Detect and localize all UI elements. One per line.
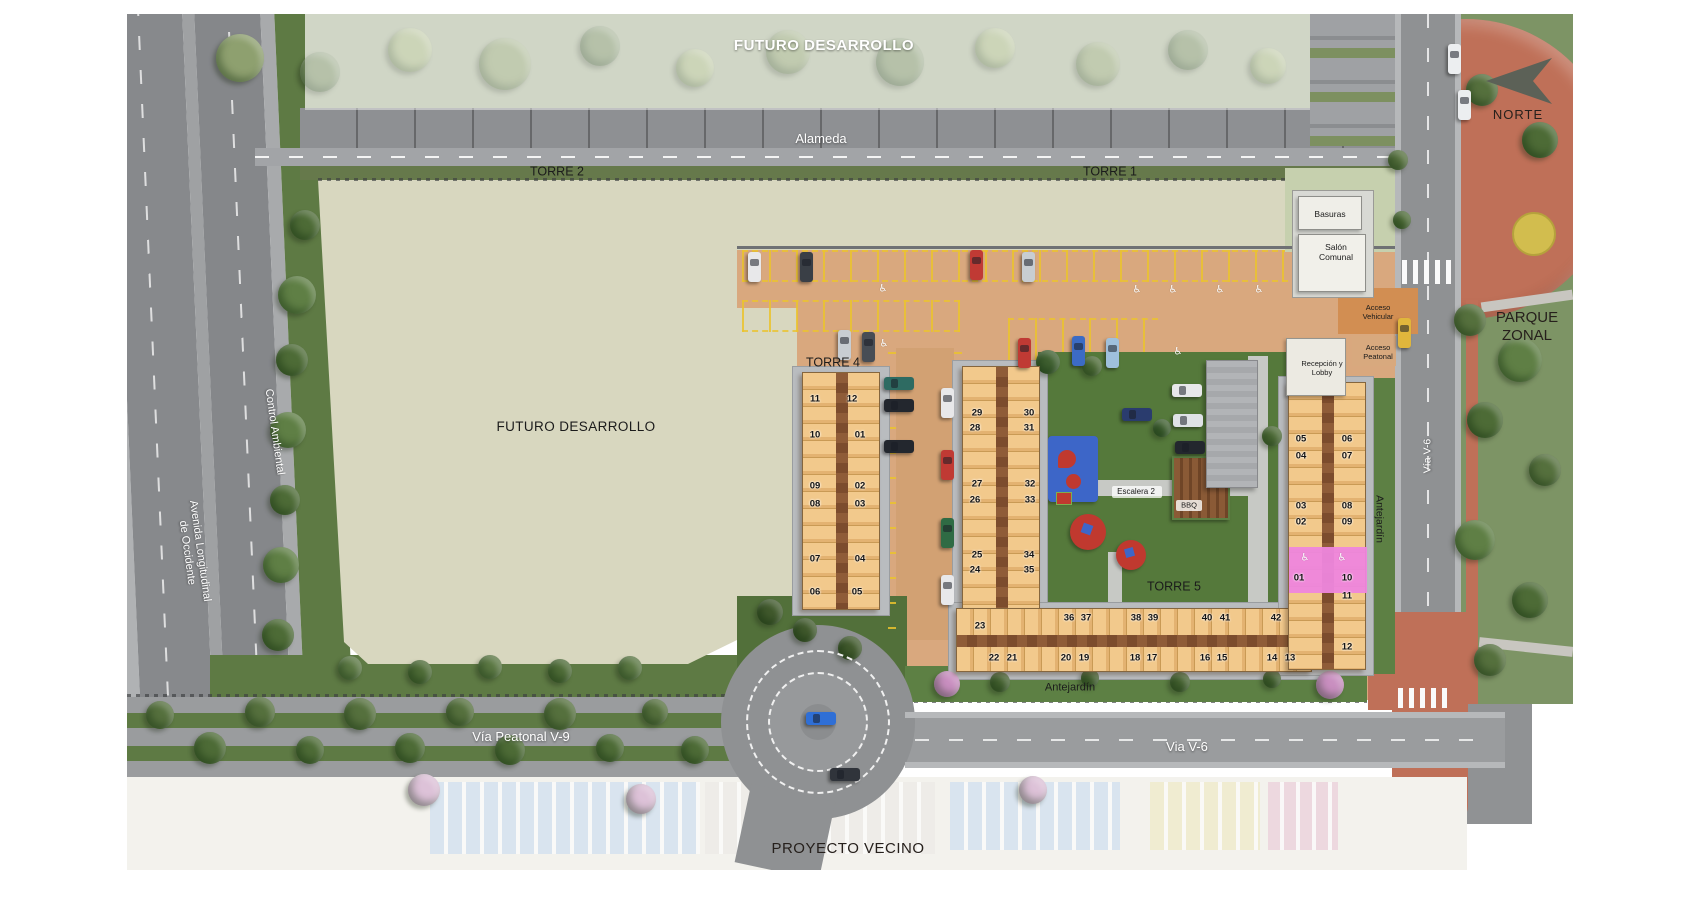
tree [146,701,174,729]
unit-number: 22 [989,653,1000,664]
unit-number: 11 [810,394,820,405]
tree [681,736,709,764]
tree [1316,671,1344,699]
car-windshield [943,525,952,532]
car-windshield [1024,259,1033,266]
unit-number: 39 [1148,613,1159,624]
unit-number: 10 [1342,573,1353,584]
tree [1393,211,1411,229]
unit-number: 37 [1081,613,1092,624]
label-torre-4: TORRE 4 [806,356,860,371]
car-windshield [1460,97,1469,104]
unit-number: 17 [1147,653,1158,664]
tree [1262,426,1282,446]
tree [1474,644,1506,676]
tree [1153,419,1171,437]
label-antejardin-east: Antejardín [1373,495,1386,543]
car-windshield [864,339,873,346]
unit-number: 03 [1296,501,1307,512]
tree [408,774,440,806]
unit-number: 06 [1342,434,1353,445]
unit-number: 30 [1024,408,1035,419]
car [884,377,914,390]
handicap-stall-icon: ♿ [880,339,889,350]
unit-number: 18 [1130,653,1141,664]
unit-number: 15 [1217,653,1228,664]
alameda-walkway [300,108,1397,148]
car-windshield [1182,443,1189,452]
car [941,450,954,480]
unit-number: 05 [1296,434,1307,445]
tree [548,659,572,683]
car [806,712,836,725]
label-antejardin-south: Antejardín [1045,681,1095,694]
car-windshield [802,259,811,266]
tree [934,671,960,697]
torre1-corridor [1322,383,1334,669]
car-windshield [943,582,952,589]
car-windshield [1074,343,1083,350]
tree [194,732,226,764]
car-windshield [891,401,898,410]
handicap-stall-icon: ♿ [879,284,888,295]
unit-number: 07 [810,554,821,565]
play-structure-red-2 [1066,474,1081,489]
car-windshield [1179,386,1186,395]
handicap-stall-icon: ♿ [1255,285,1264,296]
car-windshield [813,714,820,723]
car [970,250,983,280]
car-windshield [750,259,759,266]
unit-number: 14 [1267,653,1278,664]
tree [1082,356,1102,376]
unit-number: 02 [855,481,866,492]
tree [596,734,624,762]
unit-number: 20 [1061,653,1072,664]
car [830,768,860,781]
v9-boundary-hatch [127,694,739,697]
unit-number: 13 [1285,653,1296,664]
unit-number: 01 [1294,573,1305,584]
tree [478,655,502,679]
car-windshield [891,442,898,451]
tree [276,344,308,376]
car [748,252,761,282]
unit-number: 29 [972,408,983,419]
car-windshield [943,395,952,402]
tree [263,547,299,583]
label-torre-2: TORRE 2 [530,165,584,180]
tree [296,736,324,764]
tree [446,698,474,726]
unit-number: 32 [1025,479,1036,490]
car-windshield [840,337,849,344]
unit-number: 04 [1296,451,1307,462]
car [1022,252,1035,282]
via-v6-bottom-sidewalk-s [905,762,1505,768]
car [1448,44,1461,74]
unit-number: 06 [810,587,821,598]
unit-number: 25 [972,550,983,561]
gray-roof-building [1206,360,1258,488]
unit-number: 42 [1271,613,1282,624]
label-norte: NORTE [1493,107,1543,123]
car-windshield [1400,325,1409,332]
future-area-notch [737,308,797,640]
car [862,332,875,362]
unit-number: 41 [1220,613,1231,624]
northeast-parking-strips [1310,14,1395,146]
handicap-stall-icon: ♿ [1216,285,1225,296]
label-recepcion-lobby: Recepción y Lobby [1298,359,1346,377]
tree [338,656,362,680]
label-via-v6-south: Via V-6 [1166,739,1208,755]
car [1072,336,1085,366]
car-windshield [1450,51,1459,58]
label-parque-zonal: PARQUE ZONAL [1480,309,1573,345]
car-windshield [972,257,981,264]
unit-number: 35 [1024,565,1035,576]
unit-number: 02 [1296,517,1307,528]
unit-number: 05 [852,587,863,598]
car-windshield [1129,410,1136,419]
handicap-stall-icon: ♿ [1338,553,1347,564]
tree [216,34,264,82]
tree [344,698,376,730]
label-acceso-vehicular: Acceso Vehicular [1357,303,1399,321]
map-clip: FUTURO DESARROLLO Alameda TORRE 2 TORRE … [127,14,1573,870]
car-windshield [1020,345,1029,352]
label-torre-5: TORRE 5 [1147,580,1201,595]
unit-number: 04 [855,554,866,565]
unit-number: 08 [1342,501,1353,512]
unit-number: 01 [855,430,866,441]
tree [618,656,642,680]
unit-number: 16 [1200,653,1211,664]
label-via-peatonal-v9: Vía Peatonal V-9 [472,729,570,745]
play-structure-red-3 [1056,492,1072,505]
car-windshield [943,457,952,464]
car [941,575,954,605]
car [1172,384,1202,397]
parking-row-2 [742,300,960,332]
label-futuro-desarrollo-top: FUTURO DESARROLLO [734,37,914,55]
tree [1455,520,1495,560]
unit-number: 38 [1131,613,1142,624]
unit-number: 11 [1342,591,1352,602]
map-world: FUTURO DESARROLLO Alameda TORRE 2 TORRE … [127,14,1573,870]
site-boundary-hatch-top [318,178,1290,181]
label-proyecto-vecino: PROYECTO VECINO [771,840,924,858]
tree [262,619,294,651]
tree [1019,776,1047,804]
car [1122,408,1152,421]
unit-number: 19 [1079,653,1090,664]
park-playground-circle [1512,212,1556,256]
car [941,518,954,548]
tree [408,660,432,684]
unit-number: 33 [1025,495,1036,506]
via-v6-bottom-sidewalk-n [905,712,1505,718]
handicap-stall-icon: ♿ [1169,285,1178,296]
unit-number: 24 [970,565,981,576]
unit-number: 09 [810,481,821,492]
unit-number: 10 [810,430,821,441]
unit-number: 28 [970,423,981,434]
unit-number: 23 [975,621,986,632]
crosswalk-brick [1398,688,1450,708]
tree [1512,582,1548,618]
car [1458,90,1471,120]
torre4-corridor [836,373,848,609]
unit-number: 09 [1342,517,1353,528]
car-windshield [1180,416,1187,425]
car [884,440,914,453]
tree [290,210,320,240]
unit-number: 27 [972,479,983,490]
label-via-v6-east: Vía V-6 [1422,439,1435,473]
handicap-stall-icon: ♿ [1301,553,1310,564]
play-structure-red-1 [1058,450,1076,468]
label-bbq: BBQ [1181,501,1197,510]
unit-number: 21 [1007,653,1018,664]
tree [395,733,425,763]
tree [1467,402,1503,438]
unit-number: 08 [810,499,821,510]
tree [270,485,300,515]
label-futuro-desarrollo-main: FUTURO DESARROLLO [496,419,655,435]
unit-number: 12 [1342,642,1353,653]
alameda-street-centerline [255,156,1395,158]
car [1175,441,1205,454]
tree [1263,670,1281,688]
tree [990,672,1010,692]
handicap-stall-icon: ♿ [1174,347,1183,358]
label-acceso-peatonal: Acceso Peatonal [1358,343,1398,361]
unit-number: 26 [970,495,981,506]
tree [1522,122,1558,158]
car-windshield [1108,345,1117,352]
label-torre-1: TORRE 1 [1083,165,1137,180]
tree [642,699,668,725]
via-v6-centerline [1427,14,1429,654]
unit-number: 07 [1342,451,1353,462]
unit-number: 34 [1024,550,1035,561]
north-arrow-icon [1486,58,1552,104]
unit-number: 36 [1064,613,1075,624]
label-alameda: Alameda [795,131,846,147]
label-basuras: Basuras [1314,209,1345,219]
car [884,399,914,412]
car [1106,338,1119,368]
label-salon-comunal: Salón Comunal [1313,242,1359,262]
tree [1388,150,1408,170]
car [800,252,813,282]
car [1018,338,1031,368]
unit-number: 03 [855,499,866,510]
torre5h-corridor [957,635,1311,647]
tree [793,618,817,642]
car [1398,318,1411,348]
tree [544,698,576,730]
tree [278,276,316,314]
handicap-stall-icon: ♿ [1133,285,1142,296]
tree [757,599,783,625]
tree [245,697,275,727]
future-north-veil [305,14,1397,110]
unit-number: 31 [1024,423,1035,434]
car-windshield [837,770,844,779]
car-windshield [891,379,898,388]
tree [1170,672,1190,692]
site-plan-render: FUTURO DESARROLLO Alameda TORRE 2 TORRE … [0,0,1701,900]
car [1173,414,1203,427]
car [941,388,954,418]
crosswalk-north [1402,260,1454,284]
parking-row-north [742,250,1288,282]
unit-number: 12 [847,394,858,405]
tree [626,784,656,814]
label-escalera-2: Escalera 2 [1117,487,1155,497]
unit-number: 40 [1202,613,1213,624]
tree [1529,454,1561,486]
